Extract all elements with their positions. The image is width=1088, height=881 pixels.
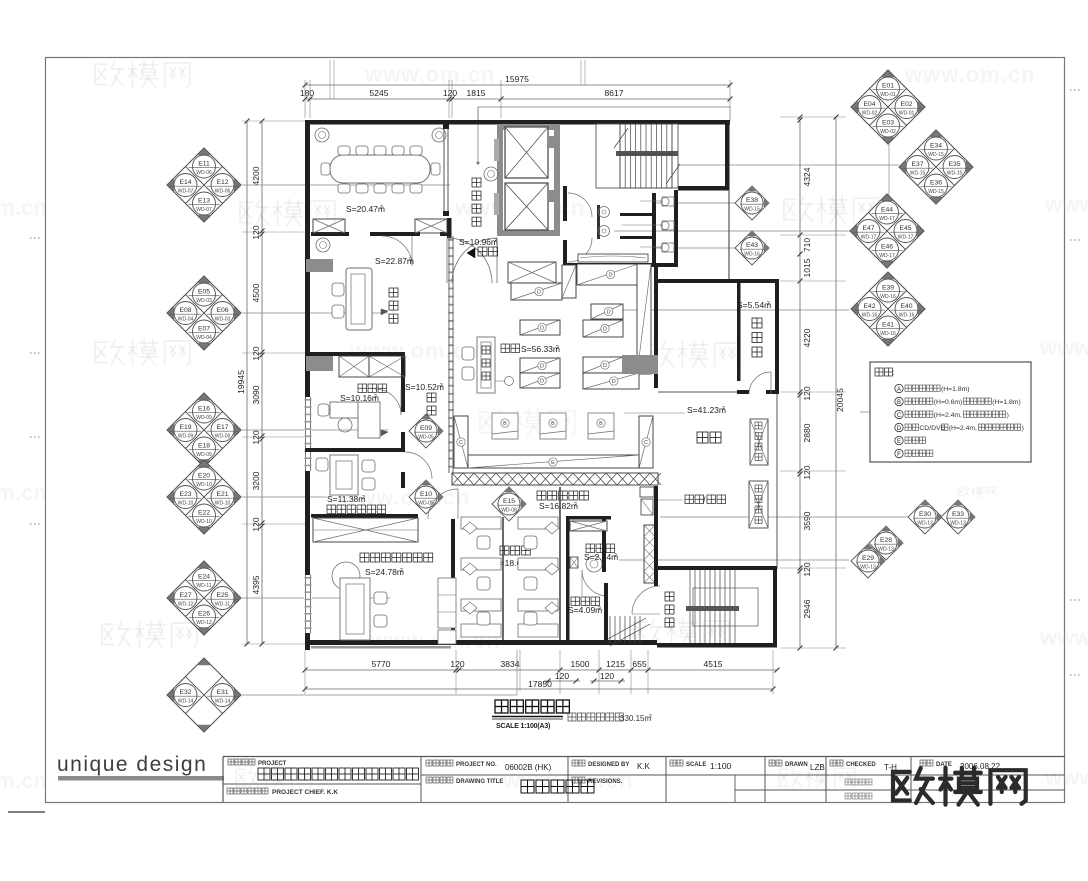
svg-text:WD-11: WD-11 — [215, 602, 230, 608]
svg-text:B: B — [551, 421, 555, 427]
svg-text:E33: E33 — [952, 511, 964, 518]
svg-text:C: C — [644, 440, 648, 446]
svg-text:E27: E27 — [179, 592, 191, 599]
svg-text:120: 120 — [802, 386, 812, 400]
svg-text:WD-04: WD-04 — [196, 335, 212, 341]
svg-text:WD-02: WD-02 — [880, 129, 896, 135]
svg-text:2: 2 — [440, 383, 443, 389]
svg-text:E42: E42 — [863, 303, 875, 310]
svg-text:A: A — [897, 387, 901, 393]
svg-text:(H=1.8m): (H=1.8m) — [941, 386, 970, 393]
svg-text:15975: 15975 — [505, 74, 529, 84]
svg-text:E46: E46 — [881, 243, 893, 250]
svg-text:WD-10: WD-10 — [178, 501, 194, 507]
svg-text:D: D — [612, 379, 616, 385]
svg-text:SCALE 1:100(A3): SCALE 1:100(A3) — [496, 723, 550, 730]
svg-text:WD-12: WD-12 — [178, 602, 194, 608]
svg-text:WD-17: WD-17 — [879, 253, 895, 259]
svg-text:WD-05: WD-05 — [418, 501, 434, 507]
svg-text:WD-07: WD-07 — [196, 207, 212, 213]
svg-text:E02: E02 — [900, 101, 912, 108]
svg-text:E45: E45 — [899, 225, 911, 232]
svg-text:17850: 17850 — [528, 679, 552, 689]
svg-text:E06: E06 — [216, 307, 228, 314]
svg-text:WD-15: WD-15 — [947, 171, 963, 177]
svg-text:E28: E28 — [880, 537, 892, 544]
svg-text:WD-17: WD-17 — [861, 235, 877, 241]
svg-text:E36: E36 — [930, 179, 942, 186]
svg-text:120: 120 — [802, 562, 812, 576]
svg-text:PROJECT: PROJECT — [258, 761, 287, 767]
svg-text:F: F — [897, 452, 901, 458]
svg-text:2946: 2946 — [802, 599, 812, 618]
svg-text:PROJECT CHIEF. K.K: PROJECT CHIEF. K.K — [272, 789, 338, 796]
svg-text:E29: E29 — [862, 555, 874, 562]
svg-text:WD-13: WD-13 — [950, 521, 966, 527]
svg-text:WD-05: WD-05 — [418, 435, 434, 441]
svg-text:E41: E41 — [882, 321, 894, 328]
svg-text:4324: 4324 — [802, 167, 812, 186]
svg-text:WD-09: WD-09 — [196, 452, 212, 458]
svg-text:WD-03: WD-03 — [196, 298, 212, 304]
svg-text:1015: 1015 — [802, 258, 812, 277]
svg-text:E05: E05 — [198, 288, 210, 295]
svg-text:E: E — [551, 460, 555, 466]
svg-text:5770: 5770 — [372, 659, 391, 669]
svg-text:D: D — [540, 364, 544, 370]
svg-text:WD-03: WD-03 — [215, 317, 231, 323]
svg-text:WD-17: WD-17 — [879, 216, 895, 222]
svg-text:E19: E19 — [179, 424, 191, 431]
svg-text:(H=1.8m): (H=1.8m) — [992, 399, 1021, 406]
svg-text:B: B — [503, 421, 507, 427]
svg-text:WD-16: WD-16 — [880, 294, 896, 300]
svg-text:WD-14: WD-14 — [178, 699, 194, 705]
svg-text:(H=0.6m): (H=0.6m) — [934, 399, 963, 406]
svg-text:E35: E35 — [948, 161, 960, 168]
svg-text:DESIGNED BY: DESIGNED BY — [588, 762, 629, 768]
svg-text:E09: E09 — [420, 425, 432, 432]
svg-text:2: 2 — [598, 606, 601, 612]
svg-text:WD-01: WD-01 — [899, 111, 915, 117]
svg-text:710: 710 — [802, 238, 812, 252]
svg-text:www.om.cn: www.om.cn — [364, 62, 495, 87]
svg-text:WD-01: WD-01 — [880, 92, 896, 98]
svg-text:E18: E18 — [198, 442, 210, 449]
svg-text:www.om.cn: www.om.cn — [904, 62, 1035, 87]
svg-text:www.: www. — [1044, 765, 1088, 790]
svg-text:): ) — [1022, 425, 1024, 432]
svg-text:www.: www. — [1044, 192, 1088, 217]
svg-text:WD-16: WD-16 — [899, 313, 915, 319]
svg-text:E07: E07 — [198, 325, 210, 332]
svg-text:E10: E10 — [420, 491, 432, 498]
svg-text:(H=2.4m,: (H=2.4m, — [949, 425, 977, 432]
svg-text:E38: E38 — [746, 197, 758, 204]
svg-text:2: 2 — [767, 301, 770, 307]
svg-text:E17: E17 — [216, 424, 228, 431]
svg-text:www.o: www.o — [1039, 625, 1088, 650]
svg-text:unique design: unique design — [57, 753, 207, 776]
svg-text:LZB: LZB — [810, 763, 825, 772]
svg-text:120: 120 — [251, 517, 261, 531]
svg-text:WD-09: WD-09 — [196, 415, 212, 421]
svg-text:E30: E30 — [919, 511, 931, 518]
svg-text:4220: 4220 — [802, 328, 812, 347]
svg-text:WD-07: WD-07 — [178, 189, 194, 195]
svg-text:E43: E43 — [746, 242, 758, 249]
svg-text:120: 120 — [443, 88, 457, 98]
svg-text:8617: 8617 — [605, 88, 624, 98]
svg-text:4515: 4515 — [704, 659, 723, 669]
svg-text:E44: E44 — [881, 206, 893, 213]
svg-text:2: 2 — [494, 238, 497, 244]
svg-text:WD-13: WD-13 — [860, 565, 876, 571]
svg-text:E37: E37 — [911, 161, 923, 168]
svg-text:WD-13: WD-13 — [878, 547, 894, 553]
svg-text:WD-16: WD-16 — [744, 252, 760, 258]
svg-text:2: 2 — [556, 345, 559, 351]
svg-text:D: D — [607, 310, 611, 316]
svg-text::: : — [892, 368, 894, 377]
svg-text:120: 120 — [251, 430, 261, 444]
svg-text:WD-06: WD-06 — [215, 189, 231, 195]
svg-text:19945: 19945 — [236, 370, 246, 394]
svg-text:C: C — [897, 413, 902, 419]
svg-text:E16: E16 — [198, 405, 210, 412]
svg-text:S=11.38m: S=11.38m — [327, 494, 365, 504]
svg-text:4500: 4500 — [251, 283, 261, 302]
svg-text:E21: E21 — [216, 491, 228, 498]
svg-text:WD-09: WD-09 — [178, 434, 194, 440]
svg-text:): ) — [1007, 412, 1009, 419]
svg-text:E12: E12 — [216, 179, 228, 186]
svg-text:E24: E24 — [198, 573, 210, 580]
svg-text:3200: 3200 — [251, 471, 261, 490]
svg-text:WD-08: WD-08 — [501, 508, 517, 514]
svg-text:D: D — [897, 426, 902, 432]
svg-text:E31: E31 — [216, 689, 228, 696]
svg-text:WD-16: WD-16 — [880, 331, 896, 337]
svg-text:3090: 3090 — [251, 385, 261, 404]
svg-text:D: D — [603, 363, 607, 369]
svg-text:WD-09: WD-09 — [215, 434, 231, 440]
svg-text:S=16.82m: S=16.82m — [539, 501, 578, 511]
svg-text:E11: E11 — [198, 160, 210, 167]
svg-text:(H=2.4m,: (H=2.4m, — [934, 412, 962, 419]
svg-text:WD-10: WD-10 — [215, 501, 231, 507]
svg-text:E40: E40 — [900, 303, 912, 310]
svg-text:PROJECT NO.: PROJECT NO. — [456, 762, 497, 768]
svg-text:180: 180 — [300, 88, 314, 98]
svg-text:330.15m: 330.15m — [620, 714, 651, 723]
svg-text:WD-13: WD-13 — [917, 521, 933, 527]
svg-text:06002B (HK): 06002B (HK) — [505, 763, 552, 772]
svg-text:120: 120 — [251, 225, 261, 239]
svg-text:2: 2 — [722, 406, 725, 412]
svg-text:1500: 1500 — [571, 659, 590, 669]
svg-text:WD-06: WD-06 — [196, 170, 212, 176]
svg-text:E04: E04 — [863, 101, 875, 108]
svg-text:4200: 4200 — [251, 166, 261, 185]
svg-text:655: 655 — [632, 659, 646, 669]
svg-text:www.o: www.o — [1039, 335, 1088, 360]
svg-text:D: D — [540, 379, 544, 385]
svg-text:S=10.96m: S=10.96m — [459, 237, 498, 247]
svg-text:S=56.33m: S=56.33m — [521, 344, 560, 354]
svg-text:WD-15: WD-15 — [910, 171, 926, 177]
svg-text:WD-15: WD-15 — [928, 152, 944, 158]
svg-text:E20: E20 — [198, 472, 210, 479]
svg-text:3590: 3590 — [802, 511, 812, 530]
svg-text:120: 120 — [450, 659, 464, 669]
svg-text:120: 120 — [802, 465, 812, 479]
svg-text:E47: E47 — [862, 225, 874, 232]
svg-text:WD-02: WD-02 — [862, 111, 878, 117]
svg-text:120: 120 — [555, 671, 569, 681]
svg-text:B: B — [599, 421, 603, 427]
svg-text:D: D — [537, 290, 541, 296]
svg-text:om.cn: om.cn — [0, 195, 47, 220]
svg-text:E34: E34 — [930, 142, 942, 149]
svg-text:D: D — [609, 273, 613, 279]
svg-text:S=41.23m: S=41.23m — [687, 405, 726, 415]
svg-text:CHECKED: CHECKED — [846, 762, 876, 768]
svg-text:REVISIONS.: REVISIONS. — [588, 779, 623, 785]
svg-text:S=10.52m: S=10.52m — [405, 382, 444, 392]
svg-text:WD-10: WD-10 — [196, 482, 212, 488]
svg-text:WD-04: WD-04 — [178, 317, 194, 323]
svg-text:2: 2 — [649, 714, 652, 720]
svg-text:120: 120 — [251, 346, 261, 360]
svg-text:E01: E01 — [882, 82, 894, 89]
svg-text:C: C — [459, 440, 463, 446]
svg-text:1215: 1215 — [606, 659, 625, 669]
svg-text:D: D — [603, 327, 607, 333]
svg-text:E22: E22 — [198, 509, 210, 516]
svg-text:DRAWN: DRAWN — [785, 762, 808, 768]
svg-text:WD-15: WD-15 — [928, 189, 944, 195]
svg-text:2: 2 — [380, 205, 383, 211]
svg-text:K.K: K.K — [637, 762, 651, 771]
svg-text:S=24.78m: S=24.78m — [365, 567, 404, 577]
svg-text:4395: 4395 — [251, 575, 261, 594]
svg-text:2: 2 — [400, 568, 403, 574]
svg-text:E26: E26 — [198, 610, 210, 617]
svg-text:E03: E03 — [882, 119, 894, 126]
svg-text:120: 120 — [600, 671, 614, 681]
svg-text:E: E — [897, 439, 901, 445]
svg-text:5245: 5245 — [370, 88, 389, 98]
svg-text:WD-15: WD-15 — [744, 207, 760, 213]
svg-text:2: 2 — [374, 394, 377, 400]
svg-text:E08: E08 — [179, 307, 191, 314]
svg-text:WD-17: WD-17 — [898, 235, 914, 241]
svg-text:2: 2 — [362, 495, 365, 501]
svg-text:1815: 1815 — [467, 88, 486, 98]
svg-text:E32: E32 — [179, 689, 191, 696]
svg-text:om.cn: om.cn — [0, 480, 47, 505]
svg-text:WD-16: WD-16 — [862, 313, 878, 319]
svg-text:E39: E39 — [882, 284, 894, 291]
svg-text:B: B — [897, 400, 901, 406]
svg-text:WD-11: WD-11 — [196, 583, 211, 589]
svg-text:WD-12: WD-12 — [196, 620, 212, 626]
svg-text:E14: E14 — [179, 179, 191, 186]
svg-text:2: 2 — [574, 502, 577, 508]
svg-text:om.cn: om.cn — [0, 768, 47, 793]
svg-text:SCALE: SCALE — [686, 762, 706, 768]
svg-text:E25: E25 — [216, 592, 228, 599]
svg-text:20045: 20045 — [835, 388, 845, 412]
svg-text:E23: E23 — [179, 491, 191, 498]
svg-text:WD-10: WD-10 — [196, 519, 212, 525]
svg-text:E13: E13 — [198, 197, 210, 204]
svg-text:E15: E15 — [503, 498, 515, 505]
svg-text:1:100: 1:100 — [710, 761, 732, 771]
svg-text:WD-14: WD-14 — [215, 699, 231, 705]
svg-text:2880: 2880 — [802, 423, 812, 442]
svg-text:DRAWING TITLE: DRAWING TITLE — [456, 779, 503, 785]
svg-text:2: 2 — [614, 553, 617, 559]
svg-text:D: D — [540, 326, 544, 332]
